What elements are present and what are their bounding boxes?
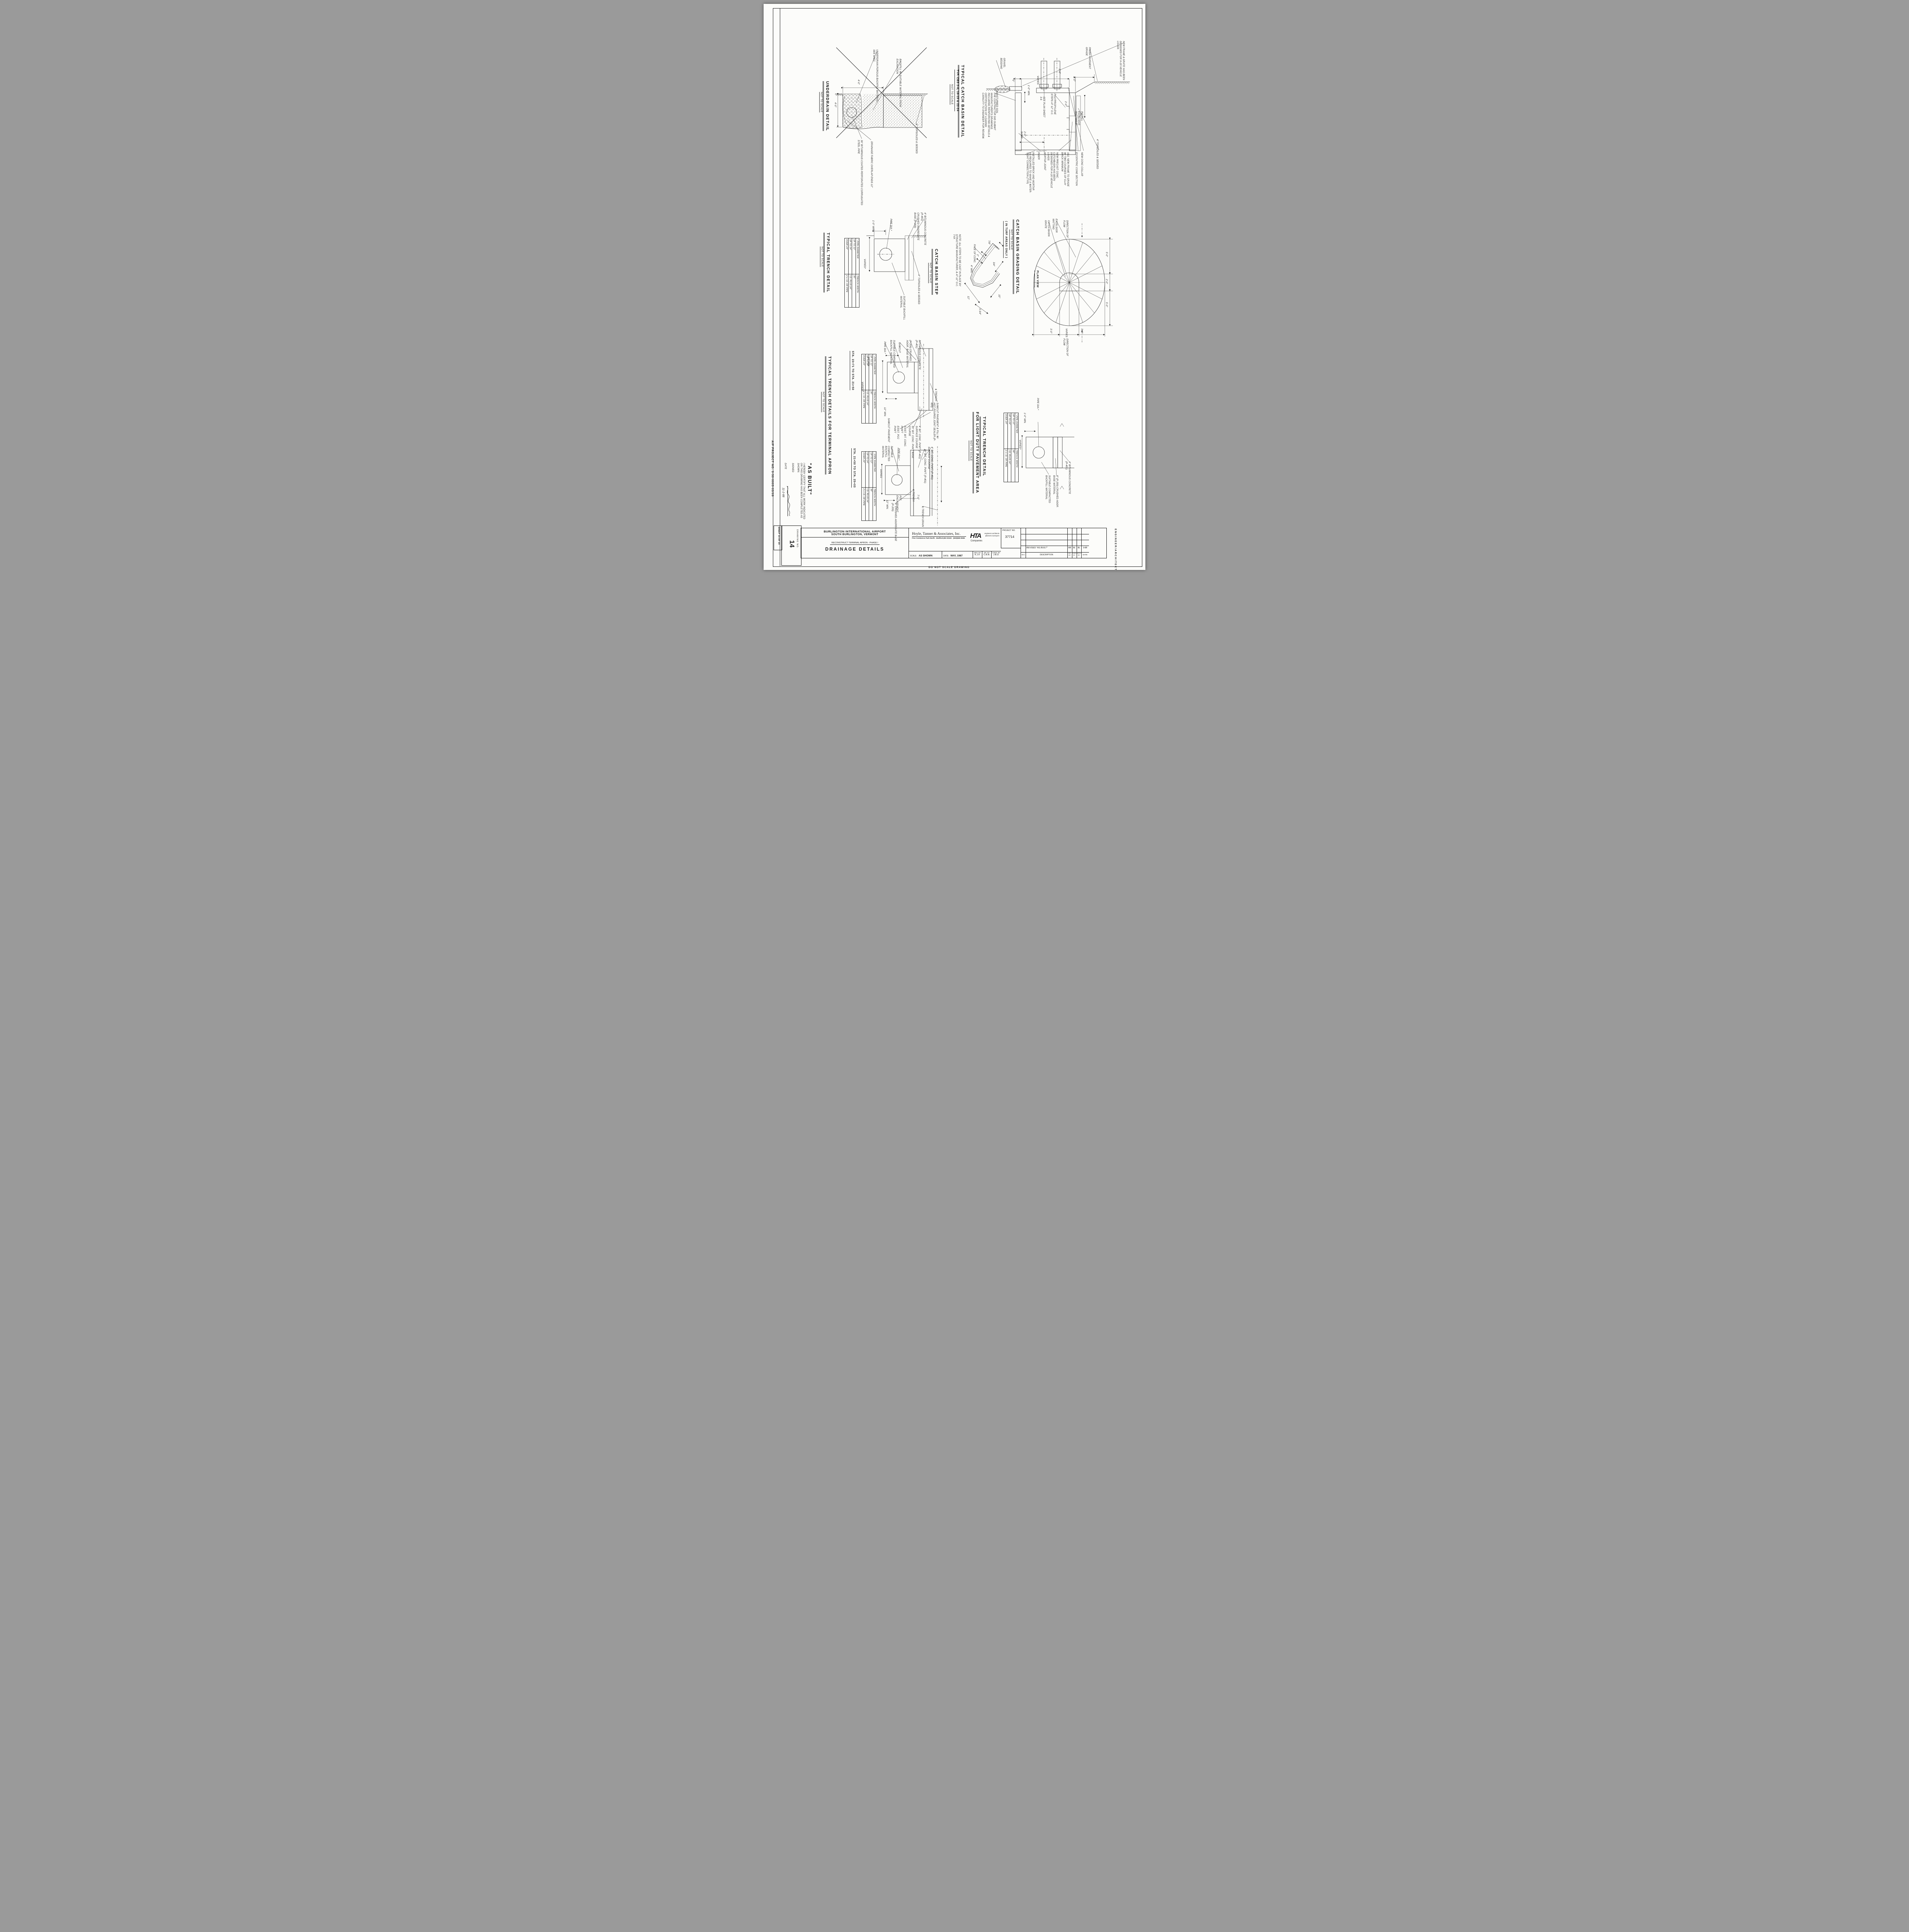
- rev-entry-chkd: BL: [1072, 547, 1077, 549]
- cb-grading-title: CATCH BASIN GRADING DETAIL: [1013, 219, 1020, 294]
- cb-grading-dim-3b: 3'-0": [1080, 328, 1083, 333]
- catch-basin-dim-varies: VARIES: [1036, 76, 1039, 85]
- date-value: MAY, 1987: [951, 554, 963, 557]
- apron-b-label-pipe-dia: PIPE DIA.*: [897, 448, 900, 460]
- apron-b-label-pcc: PCC ENCASEMENT: [895, 495, 901, 515]
- catch-basin-dim-2-6: 2'-6": [1058, 69, 1061, 74]
- cb-grading-label-matting: EXCELSIOR MATTING: [1051, 219, 1057, 240]
- as-built-certification: I HEREBY CERTIFY THAT ALL WORK INDICATED…: [796, 463, 805, 521]
- project-no-value: 37714: [1005, 535, 1021, 539]
- underdrain-label-fabric: DRAINAGE FABRIC OVERLAP ENDS 12": [870, 141, 873, 188]
- catch-basin-title: TYPICAL CATCH BASIN DETAIL: [958, 65, 965, 138]
- apron-sta1: STA. 15+71 TO STA. 21+50: [850, 351, 854, 390]
- cb-grading-label-grate: CATCH BASIN GRATE: [1044, 220, 1050, 240]
- apron-b-label-backfill: SUITABLE COMPACTED BACKFILL MATERIAL: [881, 446, 893, 468]
- trench-detail-table: * PIPE DIAMETERTRENCH WIDTH UP TO 12"36"…: [844, 238, 859, 308]
- rev-entry-dr: RB: [1067, 547, 1072, 549]
- trench-detail-title: TYPICAL TRENCH DETAIL: [824, 233, 830, 293]
- trench-detail-label-bituminous: 4" BITUMINOUS CONCRETE (P-401): [920, 213, 926, 246]
- underdrain-label-porous-backfill: UNDERDRAIN POROUS BACKFILL MATERIAL, SEE…: [872, 49, 878, 107]
- catch-basin-dim-5: 5": [1011, 80, 1014, 82]
- catch-basin-label-see-plan: SEE PLAN SHEET 3-6: [1039, 97, 1045, 118]
- catch-basin-label-topsoil: 4" TOPSOILED & SEEDED: [1096, 139, 1099, 169]
- owner-divider: [801, 537, 909, 537]
- trench-detail-label-pipe-dia: PIPE DIA.*: [889, 219, 892, 231]
- as-built-date-value: 11-2-88: [781, 488, 784, 497]
- cb-step-dim-6: 3 3/4": [978, 308, 981, 315]
- light-duty-label-pipe-dia: PIPE DIA.*: [1036, 398, 1039, 410]
- trench-detail-scale-note: NOT TO SCALE: [820, 247, 823, 267]
- cb-step-dim-1: 7/8": [987, 240, 990, 245]
- project-name: RECONSTRUCT TERMINAL APRON - PHASE I: [801, 538, 909, 545]
- title-block: BURLINGTON INTERNATIONAL AIRPORT SOUTH B…: [801, 528, 1107, 558]
- cb-step-note: NOTE: ALL STEPS TO BE CAST IN PLACE BY S…: [952, 234, 961, 287]
- cb-step-dim-7: 10": [997, 294, 1000, 298]
- scale-cell: SCALE: AS SHOWN: [909, 551, 942, 558]
- do-not-scale: DO NOT SCALE DRAWING: [891, 566, 1007, 569]
- apron-a-label-sawcut-fill: SAWCUT PAVEMENT & FILL W/ HOT POURED JOI…: [930, 403, 939, 444]
- catch-basin-subtitle: TYP. CBS 2-6, 16-19 & 22-24: [954, 70, 959, 111]
- catch-basin-grading-drawing: [1017, 219, 1125, 346]
- apron-b-label-varies: VARIES: [879, 469, 882, 478]
- apron-b-label-min12: 12" MIN.: [885, 500, 888, 510]
- rev-entry-date: 9-88: [1081, 547, 1089, 549]
- apron-a-label-pipe-dia: PIPE DIA.*: [883, 342, 886, 354]
- dr-by-cell: DR. BY C.B.B.: [982, 551, 991, 558]
- project-no-cell: PROJECT NO. 37714: [1001, 528, 1021, 548]
- rev-header-description: DESCRIPTION: [1026, 554, 1067, 556]
- project-no-label: PROJECT NO.: [1002, 529, 1021, 532]
- underdrain-label-topsoil: 4" TOPSOILED & SEEDED: [915, 124, 918, 162]
- aip-project-no: AIP PROJECT NO. 3-50-0005-03/09: [770, 440, 774, 497]
- apron-sta2: STA. 21+50 TO STA. 25+03: [851, 448, 856, 488]
- cb-grading-label-flow-bottom: DIRECTION OF FLOW: [1062, 338, 1068, 359]
- apron-a-label-exist-bit: EXIST. BIT. CONC. PVM'T: [900, 426, 906, 448]
- sheet-title: DRAINAGE DETAILS: [801, 547, 909, 552]
- cb-grading-dim-5b: 5'-0": [1105, 302, 1108, 307]
- underdrain-dim-depth: 4'-0": [834, 102, 837, 107]
- underdrain-dim-width: 4'-0": [857, 80, 860, 85]
- underdrain-title: UNDERDRAIN DETAIL: [823, 81, 830, 131]
- chkd-by-cell: CHKD. BY J.B.D.: [991, 551, 1001, 558]
- apron-title: TYPICAL TRENCH DETAILS FOR TERMINAL APRO…: [825, 356, 832, 474]
- revision-table: REVISED "AS BUILT" RB BL BL 9-88 REV. DE…: [1021, 528, 1089, 558]
- step-geometry: [966, 243, 1004, 314]
- catch-basin-label-install-matting: INSTALL EXCELSIOR MATTING 3": [1074, 111, 1083, 134]
- hta-logo-sub: Companies: [971, 540, 982, 542]
- cb-step-title: CATCH BASIN STEP: [932, 249, 939, 295]
- apron-scale-note: NOT TO SCALE: [821, 392, 825, 412]
- catch-basin-label-adj-frame: ADJ. NEW FRAME TO GRADE W/ TWO COURSES O…: [1060, 152, 1069, 189]
- catch-basin-scale-note: NOT TO SCALE: [950, 84, 953, 105]
- hta-logo: HTA: [970, 532, 981, 540]
- underdrain-scale-note: NOT TO SCALE: [819, 92, 823, 112]
- signature: [785, 485, 792, 516]
- trench-detail-label-varies: VARIES*: [863, 259, 866, 269]
- leader-lines: [1038, 422, 1069, 475]
- apron-a-label-bituminous: BITUMINOUS CONCRETE (P-401): [915, 340, 920, 370]
- catch-basin-label-precast: NEW PRECAST CONC. CATCHBASIN HAS BEEN DE…: [1046, 152, 1058, 192]
- catch-basin-label-undisturbed-soil: UNDISTURBED SOIL: [995, 90, 998, 114]
- owner-line2: SOUTH BURLINGTON, VERMONT: [801, 533, 909, 536]
- dr-by-value: C.B.B.: [982, 554, 991, 556]
- date-cell: DATE: MAY, 1987: [942, 551, 973, 558]
- apron-a-label-varies: VARIES*: [861, 382, 864, 391]
- trench-detail-label-topsoil: 4" TOPSOILED & SEEDED: [917, 274, 920, 310]
- light-duty-label-aggregate: 8" (P-209) CRUSHED AGGR. BASE MATERIAL: [1052, 475, 1058, 511]
- cb-step-label-face: FACE OF CONC.: [973, 244, 976, 267]
- rev-entry-appd: BL: [1077, 547, 1081, 549]
- apron-b-label-surface: 4" BIT. CONC. PVM'T (P-401) SURFACE COUR…: [927, 447, 933, 482]
- engineer-architect: ENGINEER/ARCHITECT: [1114, 529, 1117, 570]
- titleblock-owner-cell: BURLINGTON INTERNATIONAL AIRPORT SOUTH B…: [801, 528, 909, 558]
- rev-header-appd: APPD. BY: [1077, 553, 1081, 556]
- apron-a-label-aggregate: (P-209) CRUSHED AGGR. BASE MATERIAL: [905, 340, 911, 369]
- cb-step-dim-5: 12": [966, 296, 970, 299]
- catch-basin-label-eccentric: ECCENTRIC CONE SECTION: [1075, 152, 1078, 186]
- light-duty-title-2: FOR LIGHT DUTY PAVEMENT AREA: [973, 412, 980, 493]
- date-rule: [780, 486, 780, 516]
- cb-grading-dim-5a: 5'-0": [1105, 252, 1108, 257]
- chkd-by-value: J.B.D.: [992, 554, 1001, 556]
- sheet-no: SHEET 14 OF 23: [777, 527, 780, 544]
- apron-a-label-sawcut-pvmt: SAWCUT PAVEMENT: [887, 418, 890, 444]
- as-built-heading: "AS BUILT": [806, 463, 812, 521]
- cb-grading-dim-varies: VARIES: [1065, 328, 1068, 337]
- rev-header-date: DATE: [1081, 554, 1089, 556]
- underdrain-geometry: [835, 48, 928, 140]
- cb-step-dim-4: 3/4": [992, 262, 995, 266]
- underdrain-label-suitable-backfill: BACKFILL W/ SUITABLE MATERIAL FROM EXCAV…: [895, 59, 901, 109]
- apron-b-label-base: 10" BIT. CONC. PVM'T (P-401): [923, 449, 926, 485]
- catch-basin-dim-1-0-min: 1'-0" MIN.: [1027, 85, 1030, 96]
- apron-b-label-dim-7: 7'-0": [916, 495, 919, 500]
- light-duty-label-varies: VARIES*: [1018, 440, 1021, 449]
- apron-a-label-backfill: SUITABLE COMPACTED BACKFILL MATERIAL: [889, 340, 895, 369]
- radial-spokes: [1034, 239, 1105, 326]
- apron-b-label-cl-drain: ℄ TRENCH DRAIN: [921, 506, 924, 528]
- catch-basin-label-steps: POLYPROPYLENE STEPS AT 12" O.C.: [1050, 94, 1056, 119]
- catch-basin-dim-1-0: 1'-0": [1072, 77, 1075, 82]
- light-duty-label-backfill: SUITABLE COMPACTED BACKFILL MATERIAL: [1045, 475, 1050, 509]
- scale-label: SCALE:: [910, 555, 917, 557]
- catch-basin-label-new-frame: NEW FRAME & GRATE HAS BEEN DESIGNED FOR …: [1116, 41, 1125, 83]
- cb-step-scale-note: NOT TO SCALE: [928, 263, 932, 283]
- catch-basin-dim-2-0: 2'-0": [1064, 101, 1067, 106]
- cb-grading-subtitle: ( IN TURF AREAS ONLY ): [1003, 221, 1007, 258]
- underdrain-label-pipe: 36" BITUMINOUS COATED PERFORATED CORRUGA…: [857, 140, 863, 206]
- apron-a-label-surface: 4" BIT. CONC. PVM'T (P-401) SURFACE COUR…: [915, 426, 920, 459]
- trench-detail-label-aggregate: CRUSHED AGGREGATE BASE (P-209): [913, 213, 919, 247]
- hta-services: engineers architects planners surveyors: [983, 532, 999, 537]
- rev-header-rev: REV.: [1021, 554, 1026, 556]
- catch-basin-label-gravel-bedding: GRAVEL BEDDING: [999, 58, 1005, 78]
- cb-grading-dim-3a: 3'-0": [1049, 328, 1052, 333]
- catch-basin-note: THE CONTRACTOR DID SUBMIT MANUFACTURER'S…: [981, 93, 996, 139]
- rev-header-dr: DR. BY: [1067, 553, 1072, 556]
- light-duty-label-bituminous: 4" BITUMINOUS CONCRETE (P-401): [1065, 461, 1070, 497]
- date-label: DATE:: [943, 555, 949, 557]
- apron-table-2: * PIPE DIAMETERTRENCH WIDTH UP TO 12"36"…: [861, 451, 876, 521]
- catch-basin-label-collar: NEW CONC COLLAR: [1080, 152, 1083, 176]
- scale-value: AS SHOWN: [919, 554, 932, 557]
- firm-rule: [912, 536, 966, 537]
- catch-basin-label-installed-brick: INSTALLED BRICK AND MORTAR AS REQUIRED T…: [1026, 152, 1034, 194]
- catch-basin-dim-sump: 2'-0" SUMP: [1020, 131, 1026, 141]
- light-duty-table: * PIPE DIAMETERTRENCH WIDTH UP TO 12"36"…: [1004, 413, 1019, 482]
- apron-a-label-exist-pcc: EXIST. PCC PVM'T: [893, 426, 899, 444]
- apron-a-label-min12b: 12" MIN.: [883, 407, 886, 417]
- apron-a-label-cl-trench: ℄ TRENCH: [934, 389, 937, 401]
- des-by-cell: DES. BY K.J.F.: [973, 551, 982, 558]
- trench-detail-label-backfill: SUITABLE BACKFILL MATERIAL: [899, 296, 905, 332]
- rev-entry-description: REVISED "AS BUILT": [1026, 547, 1067, 549]
- apron-b-label-cl-trench: ℄ TRENCH: [912, 489, 915, 502]
- drawing-no-value: 14: [788, 540, 796, 548]
- cb-grading-scale-note: NOT TO SCALE: [1009, 230, 1013, 250]
- cb-grading-dim-2: 2'-0": [1105, 279, 1108, 284]
- light-duty-label-min: 1'-0" MIN.: [1023, 413, 1026, 423]
- owner-line1: BURLINGTON INTERNATIONAL AIRPORT: [801, 530, 909, 533]
- drawing-sheet: UNDERDRAIN DETAIL NOT TO SCALE UNDERDRAI…: [764, 4, 1145, 570]
- cb-step-dim-3: 4" MIN.: [970, 265, 973, 273]
- cb-grading-label-flow-top: DIRECTION OF FLOW: [1062, 220, 1068, 240]
- catch-basin-label-riser: RISER: [1037, 152, 1040, 160]
- catch-basin-label-mortar-joint: MORTAR JOINT: [1043, 152, 1046, 170]
- drawing-no-label: DRAWING NO.: [796, 529, 798, 548]
- trench-detail-label-min: 1'-0" MIN.: [871, 220, 875, 231]
- titleblock-firm-cell: Hoyle, Tanner & Associates, Inc. Five Co…: [909, 528, 1001, 551]
- leader-lines: [994, 43, 1123, 155]
- apron-a-label-base: 10" BIT. CONC. PVM'T BASE COURSE: [908, 426, 914, 461]
- binding-margin-line: [780, 8, 780, 566]
- apron-a-label-min12: 12" MIN.: [867, 357, 870, 367]
- apron-a-label-sawcut: SAWCUT: [898, 342, 901, 353]
- cb-step-dim-2: 2": [976, 254, 979, 257]
- catch-basin-geometry: [986, 43, 1130, 155]
- catch-basin-label-finish-grade: FINISH PAVEMENT GRADE: [1085, 47, 1091, 73]
- light-duty-scale-note: NOT TO SCALE: [969, 440, 972, 461]
- cb-grading-label-plan-view: PLAN VIEW: [1034, 270, 1039, 287]
- des-by-value: K.J.F.: [973, 554, 982, 556]
- light-duty-title-1: TYPICAL TRENCH DETAIL: [980, 417, 987, 476]
- rev-header-chkd: CHKD. BY: [1072, 553, 1077, 556]
